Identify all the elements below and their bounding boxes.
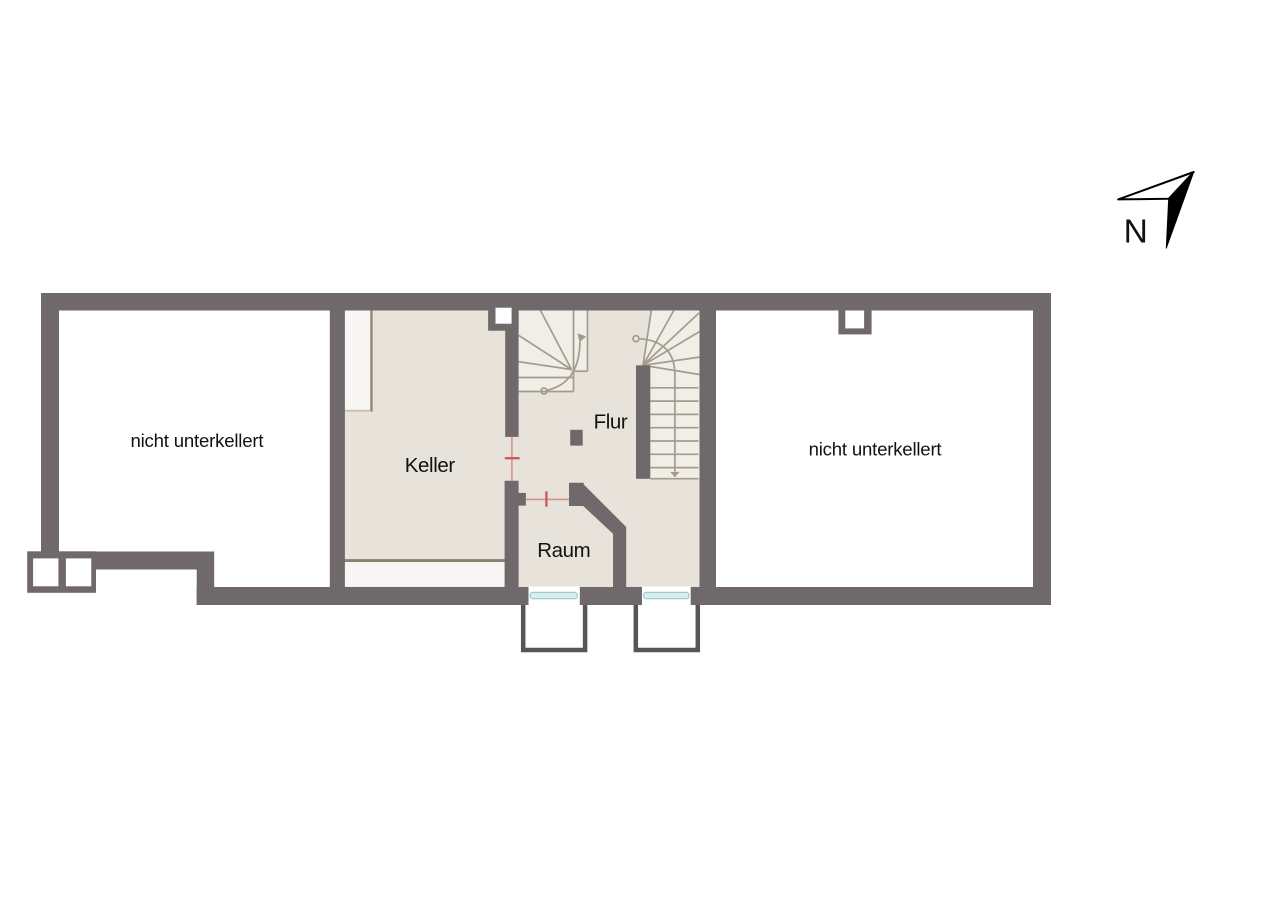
svg-text:Raum: Raum [537,539,590,562]
svg-text:N: N [1124,214,1148,251]
svg-text:nicht unterkellert: nicht unterkellert [809,438,943,459]
svg-text:Keller: Keller [405,454,456,477]
svg-text:nicht unterkellert: nicht unterkellert [130,430,264,451]
svg-text:Flur: Flur [594,411,628,434]
